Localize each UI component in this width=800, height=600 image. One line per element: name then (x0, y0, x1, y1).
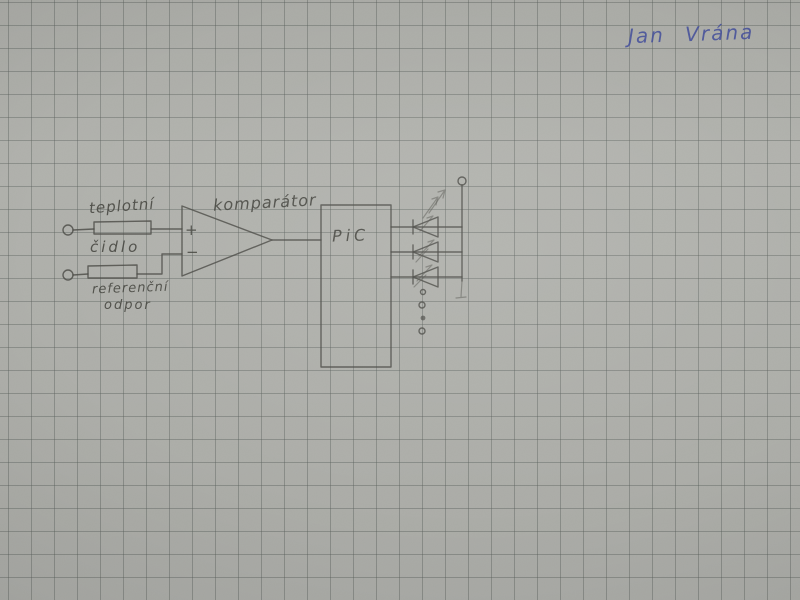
label-reference-line2: odpor (104, 298, 152, 313)
author-signature: Jan Vrána (628, 20, 755, 48)
wire-top-left (73, 229, 94, 230)
label-sensor-line2: čidlo (90, 238, 140, 256)
wire-bottom-left (73, 274, 88, 275)
comparator-minus-input-label: − (186, 243, 199, 261)
comparator-plus-input-label: + (185, 221, 198, 239)
label-mcu: PiC (332, 225, 370, 245)
photo-of-schematic: teplotní čidlo referenční odpor komparát… (0, 0, 800, 600)
label-reference-line1: referenční (92, 280, 169, 298)
